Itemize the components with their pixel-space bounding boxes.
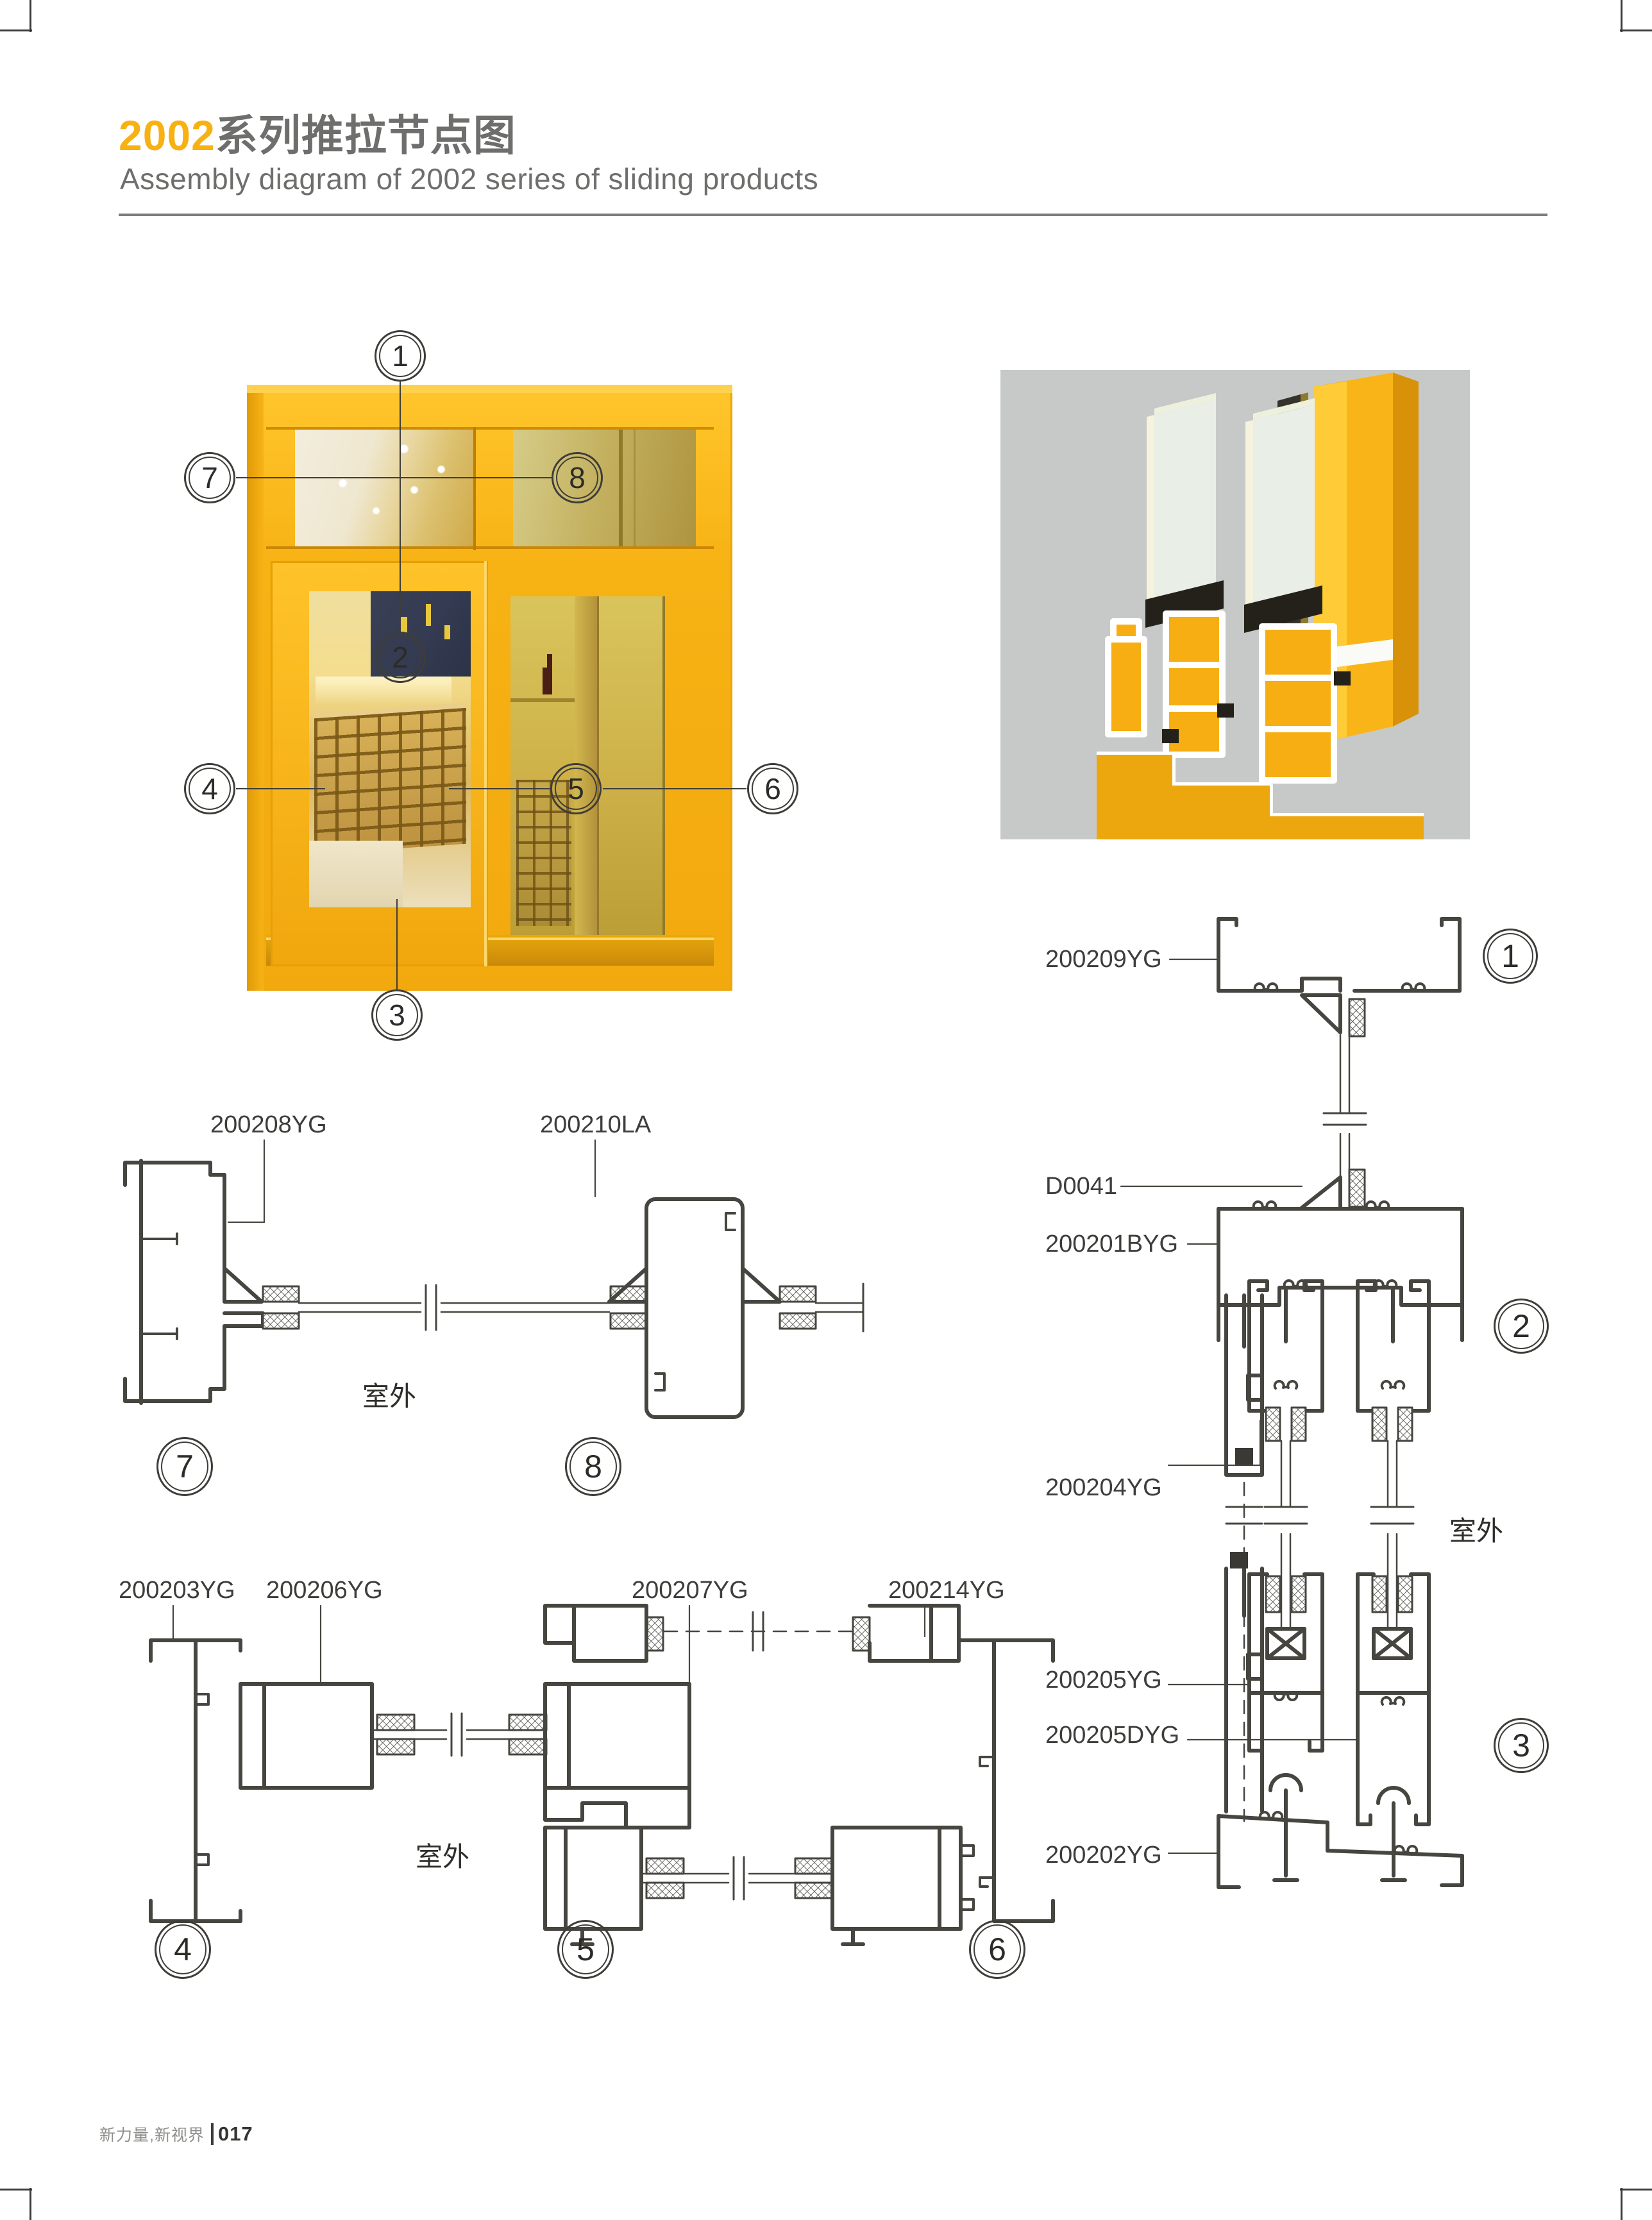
page-footer: 新力量,新视界 017 [99,2123,253,2146]
transom-rail-shadow [266,546,714,549]
callout-ring [752,768,794,810]
section-drawing-4-5-6: 200203YG 200206YG 200207YG 200214YG 室外 [96,1565,1122,1988]
section-callout-1: 1 [1483,929,1538,984]
callout-1: 1 [375,330,426,382]
callout-ring [159,1924,206,1974]
gasket-block [1230,1552,1248,1568]
glazing-clamp-d0041 [1301,1177,1340,1209]
callout-ring [555,768,597,810]
break-symbols-lower [1226,1507,1413,1524]
sash-top-clips [1275,1381,1404,1388]
footer-divider [211,2123,214,2145]
glazing-gaskets [263,1286,816,1329]
downlight [437,465,446,474]
callout-ring [1498,1303,1544,1349]
leader-line-7-8 [236,477,552,478]
leader-line-4 [236,788,325,789]
part-label-200205yg: 200205YG [1045,1667,1162,1694]
part-label-200204yg: 200204YG [1045,1474,1162,1501]
right-jamb-hooks [980,1757,994,1887]
section-callout-6: 6 [969,1920,1025,1979]
leader-line-6 [603,788,746,789]
transom-pane-right [513,430,696,546]
callout-ring [569,1442,617,1492]
crop-mark-br-v [1621,2188,1622,2220]
break-symbol-upper [1324,1113,1366,1125]
glass-lines [299,1303,863,1312]
wine-rack [314,703,466,855]
section-callout-7: 7 [156,1437,213,1496]
downlight [410,485,419,494]
meeting-stile-top [545,1606,646,1661]
callout-ring [161,1442,208,1492]
crop-mark-br-h [1620,2189,1652,2191]
interlock-profile-200207yg [545,1684,689,1944]
window-frame-top-edge [247,385,732,393]
downlight [338,478,348,488]
section-drawing-1-2-3: 200209YG D0041 200201BYG 200204YG 200205… [1026,898,1652,1975]
callout-ring [189,768,231,810]
jamb-profile-200203yg [151,1640,240,1921]
leader-lines [173,1606,925,1757]
section-callout-4: 4 [155,1920,211,1979]
callout-7: 7 [184,452,235,503]
part-label-200209yg: 200209YG [1045,946,1162,973]
callout-ring [189,457,231,499]
callout-ring [1498,1722,1544,1769]
callout-4: 4 [184,763,235,814]
callout-ring [556,457,598,499]
callout-8: 8 [552,452,603,503]
section-drawing-7-8: 200208YG 200210LA 室外 [96,1077,898,1520]
reflection-line [619,430,623,546]
sash-profile-200206yg [240,1684,372,1788]
catalog-page: 2002系列推拉节点图 Assembly diagram of 2002 ser… [0,0,1652,2220]
outdoor-label: 室外 [362,1381,416,1411]
section-callout-2: 2 [1494,1299,1549,1354]
callout-ring [1487,933,1533,979]
page-title: 2002系列推拉节点图 [119,101,516,163]
series-number: 2002 [119,112,215,159]
head-profile-200209yg [1218,919,1460,1032]
frame-profile-200208yg [125,1161,263,1403]
leader-line-5 [449,788,550,789]
sash-edge-highlight [484,561,487,966]
sash-glass-gaskets [1266,1408,1412,1612]
rear-stile-shadow [662,596,665,936]
part-label-d0041: D0041 [1045,1173,1117,1200]
callout-ring [379,335,421,377]
footer-brand: 新力量,新视界 [99,2123,205,2146]
shelf-line [510,698,575,702]
floor [309,841,403,907]
section-callout-8: 8 [565,1437,621,1496]
sash-profile-right [832,1828,961,1944]
crop-mark-tr-v [1621,0,1622,32]
paint-fleck [426,604,431,626]
part-label-200214yg: 200214YG [888,1577,1005,1604]
callout-3: 3 [371,989,423,1041]
section-456-linework [151,1606,1053,1944]
jamb-stile-profile-200214yg [870,1606,994,1661]
transom-mullion-shadow [473,427,476,550]
section-callout-3: 3 [1494,1718,1549,1773]
part-label-200205dyg: 200205DYG [1045,1722,1179,1749]
footer-page-number: 017 [218,2123,253,2146]
part-label-200210la: 200210LA [540,1111,652,1138]
callout-ring [562,1924,609,1974]
callout-ring [379,636,421,678]
page-subtitle: Assembly diagram of 2002 series of slidi… [120,162,818,196]
callout-2: 2 [375,632,426,683]
crop-mark-tr-h [1620,29,1652,31]
downlight [372,507,380,515]
paint-fleck [401,617,407,634]
gasket-block [1235,1448,1253,1465]
reflection-line [634,430,636,546]
profile-3d-render [1000,370,1470,839]
window-photo [247,385,732,991]
header-rule [119,214,1547,216]
wine-bottle [543,668,552,694]
leader-line-1-2 [400,382,401,632]
part-label-200207yg: 200207YG [632,1577,748,1604]
part-label-200203yg: 200203YG [119,1577,235,1604]
transom-pane-left [295,430,475,546]
callout-ring [376,994,418,1036]
section-callout-5: 5 [557,1920,614,1979]
outdoor-label: 室外 [1449,1516,1503,1546]
mullion-clips [655,1213,735,1390]
outdoor-label: 室外 [416,1842,469,1872]
section-78-linework [125,1140,863,1417]
part-label-200208yg: 200208YG [210,1111,327,1138]
part-label-200201byg: 200201BYG [1045,1231,1178,1257]
transom-profile-200201byg [1218,1209,1462,1340]
frame-inner-stubs [141,1234,177,1339]
crop-mark-bl-v [29,2188,31,2220]
track-prongs [1270,1775,1409,1880]
callout-ring [973,1924,1021,1974]
callout-5: 5 [550,763,602,814]
mullion-profile-200210la [609,1199,780,1417]
transom-clips [1254,1202,1397,1288]
part-label-200206yg: 200206YG [266,1577,383,1604]
crop-mark-bl-h [0,2189,32,2191]
title-chinese: 系列推拉节点图 [215,112,516,159]
window-frame-left-edge [247,385,264,991]
leader-lines [228,1140,595,1222]
lamp-glow [316,677,451,705]
crop-mark-tl-v [29,0,31,32]
leader-line-3 [396,899,398,989]
sill-profile-200202yg [1218,1816,1462,1887]
head-gaskets [1349,999,1365,1207]
part-label-200202yg: 200202YG [1045,1842,1162,1869]
wine-bottle-neck [547,654,552,668]
paint-fleck [444,625,450,639]
callout-6: 6 [747,763,798,814]
crop-mark-tl-h [0,29,32,31]
break-symbols [451,1612,763,1899]
glass-lines-upper [1340,1035,1349,1179]
